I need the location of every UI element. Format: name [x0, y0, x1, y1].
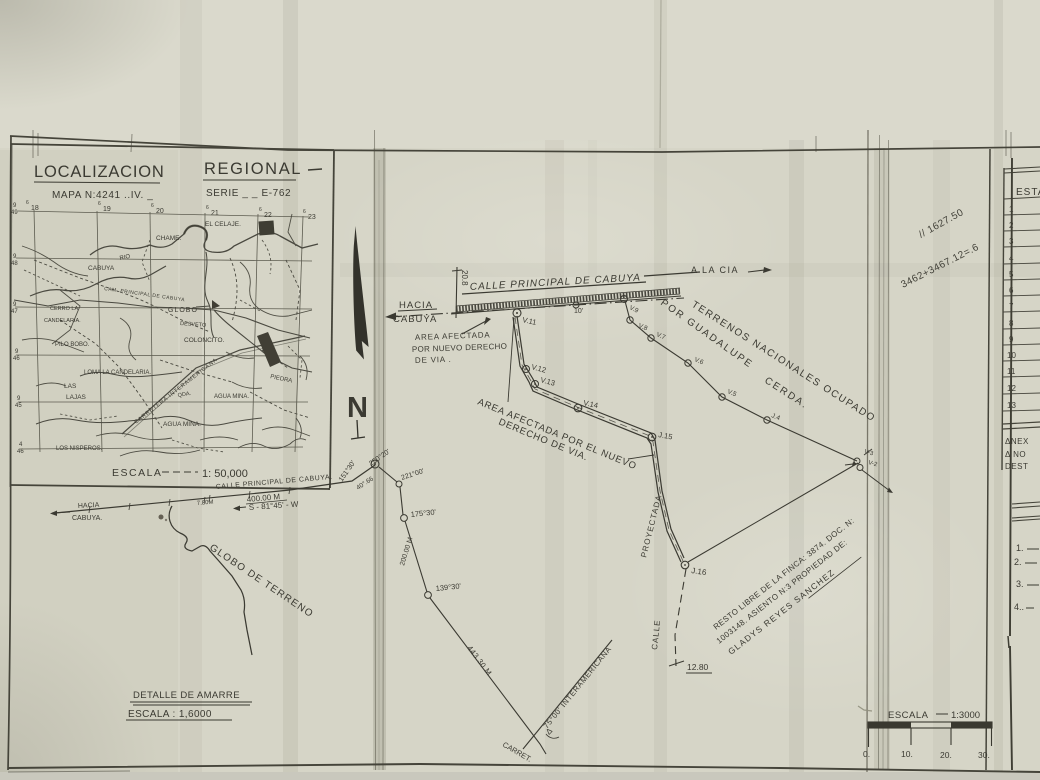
- svg-text:49: 49: [11, 210, 18, 216]
- svg-text:10.: 10.: [901, 749, 913, 759]
- svg-text:ESCALA : 1,6000: ESCALA : 1,6000: [128, 709, 212, 720]
- svg-text:2.: 2.: [1014, 557, 1022, 567]
- svg-text:21: 21: [211, 210, 219, 217]
- svg-text:3.: 3.: [1016, 579, 1024, 589]
- svg-text:46: 46: [17, 449, 24, 455]
- svg-text:6: 6: [206, 205, 209, 211]
- svg-text:LOS NISPEROS.: LOS NISPEROS.: [56, 446, 103, 452]
- svg-text:46: 46: [13, 356, 20, 362]
- svg-text:LOMA LA CANDELARIA.: LOMA LA CANDELARIA.: [84, 370, 151, 376]
- svg-text:DETALLE DE AMARRE: DETALLE DE AMARRE: [133, 690, 240, 701]
- svg-text:0.: 0.: [863, 749, 870, 759]
- svg-text:LOCALIZACION: LOCALIZACION: [34, 163, 165, 181]
- svg-text:SERIE _ _ E-762: SERIE _ _ E-762: [206, 188, 291, 199]
- svg-text:6: 6: [151, 203, 154, 209]
- svg-text:23: 23: [308, 214, 316, 221]
- svg-text:20.: 20.: [940, 750, 952, 760]
- svg-text:12.80: 12.80: [687, 662, 709, 672]
- svg-text:1:3000: 1:3000: [951, 710, 980, 721]
- svg-text:CANDELARIA.: CANDELARIA.: [44, 318, 81, 324]
- svg-text:LAS: LAS: [64, 383, 77, 390]
- svg-text:CABUYA: CABUYA: [88, 265, 115, 272]
- svg-text:10': 10': [574, 308, 583, 315]
- svg-text:CABUYA: CABUYA: [393, 314, 437, 325]
- svg-text:AGUA MINA.: AGUA MINA.: [214, 394, 249, 400]
- svg-text:GLOBO: GLOBO: [168, 307, 198, 314]
- svg-text:N: N: [347, 392, 368, 424]
- svg-text:45: 45: [15, 403, 22, 409]
- svg-text:Δ NO: Δ NO: [1005, 450, 1026, 459]
- svg-text:EL CELAJE.: EL CELAJE.: [205, 221, 241, 228]
- svg-text:6: 6: [26, 200, 29, 206]
- svg-text:22: 22: [264, 212, 272, 219]
- svg-text:CABUYA.: CABUYA.: [72, 515, 102, 522]
- svg-text:MAPA N:4241 ..IV. _: MAPA N:4241 ..IV. _: [52, 190, 153, 201]
- svg-text:CERRO LA: CERRO LA: [50, 306, 78, 312]
- svg-text:A LA CIA: A LA CIA: [691, 265, 739, 275]
- svg-text:REGIONAL: REGIONAL: [204, 160, 302, 178]
- svg-text:30.: 30.: [978, 750, 990, 760]
- svg-text:COLONCITO.: COLONCITO.: [184, 337, 225, 344]
- svg-text:LAJAS: LAJAS: [66, 394, 87, 401]
- svg-text:4..: 4..: [1014, 602, 1024, 612]
- svg-text:PILO BOBO.: PILO BOBO.: [55, 342, 90, 348]
- svg-text:ESTAC: ESTAC: [1016, 187, 1040, 198]
- svg-text:6: 6: [259, 207, 262, 213]
- svg-text:20.8: 20.8: [460, 270, 469, 286]
- svg-text:48: 48: [11, 261, 18, 267]
- svg-text:1: 50,000: 1: 50,000: [202, 468, 248, 480]
- svg-text:6: 6: [98, 201, 101, 207]
- svg-text:ESCALA: ESCALA: [112, 467, 162, 479]
- svg-text:47: 47: [11, 309, 18, 315]
- svg-text:ΔNEX: ΔNEX: [1005, 437, 1029, 446]
- svg-text:1.: 1.: [1016, 543, 1024, 553]
- svg-text:DE VIA .: DE VIA .: [415, 355, 452, 365]
- svg-text:CHAME.: CHAME.: [156, 235, 181, 242]
- svg-text:DEST: DEST: [1005, 462, 1028, 471]
- svg-text:ESCALA: ESCALA: [888, 710, 929, 721]
- svg-text:19: 19: [103, 206, 111, 213]
- svg-text:6: 6: [303, 209, 306, 215]
- svg-text:AGUA MINA.: AGUA MINA.: [163, 421, 201, 428]
